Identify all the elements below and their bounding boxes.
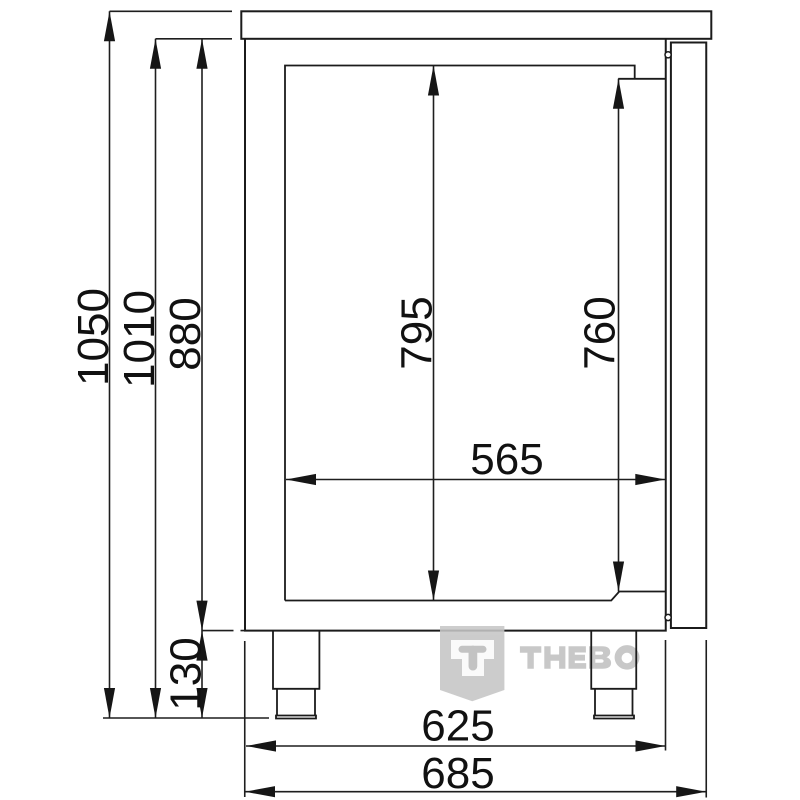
svg-text:1050: 1050 bbox=[69, 288, 118, 386]
svg-text:565: 565 bbox=[470, 435, 543, 484]
svg-text:880: 880 bbox=[161, 297, 210, 370]
svg-text:685: 685 bbox=[421, 749, 494, 798]
svg-text:760: 760 bbox=[576, 296, 625, 369]
svg-text:1010: 1010 bbox=[115, 290, 164, 388]
svg-text:795: 795 bbox=[393, 296, 442, 369]
svg-text:130: 130 bbox=[162, 637, 211, 710]
svg-text:625: 625 bbox=[421, 702, 494, 751]
